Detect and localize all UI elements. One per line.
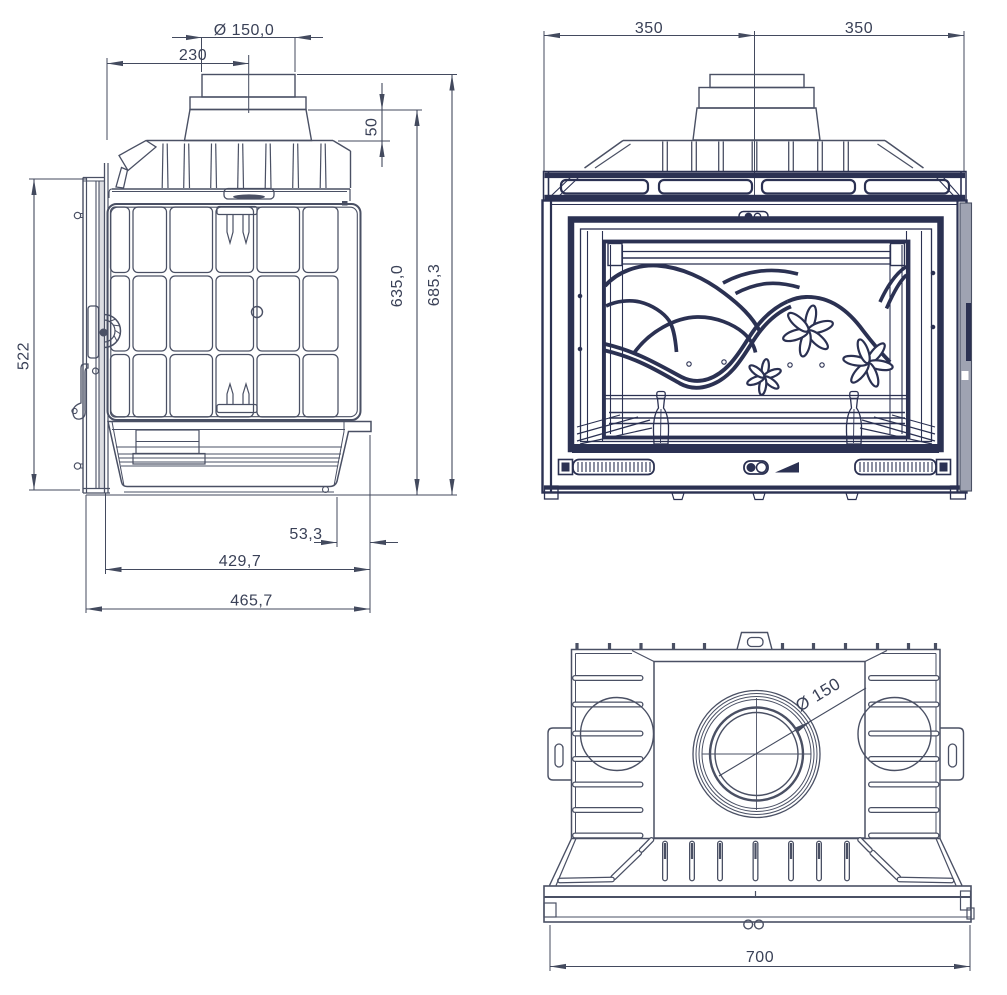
svg-text:685,3: 685,3 xyxy=(426,264,443,307)
svg-text:522: 522 xyxy=(16,342,33,370)
svg-text:230: 230 xyxy=(179,47,207,64)
svg-text:53,3: 53,3 xyxy=(289,526,322,543)
svg-text:50: 50 xyxy=(364,118,381,137)
svg-text:Ø 150,0: Ø 150,0 xyxy=(214,22,274,39)
svg-text:Ø 150: Ø 150 xyxy=(792,674,844,715)
svg-text:429,7: 429,7 xyxy=(219,553,262,570)
svg-text:635,0: 635,0 xyxy=(389,265,406,308)
svg-text:350: 350 xyxy=(635,20,663,37)
svg-text:350: 350 xyxy=(845,20,873,37)
svg-text:700: 700 xyxy=(746,949,774,966)
svg-text:465,7: 465,7 xyxy=(230,593,273,610)
